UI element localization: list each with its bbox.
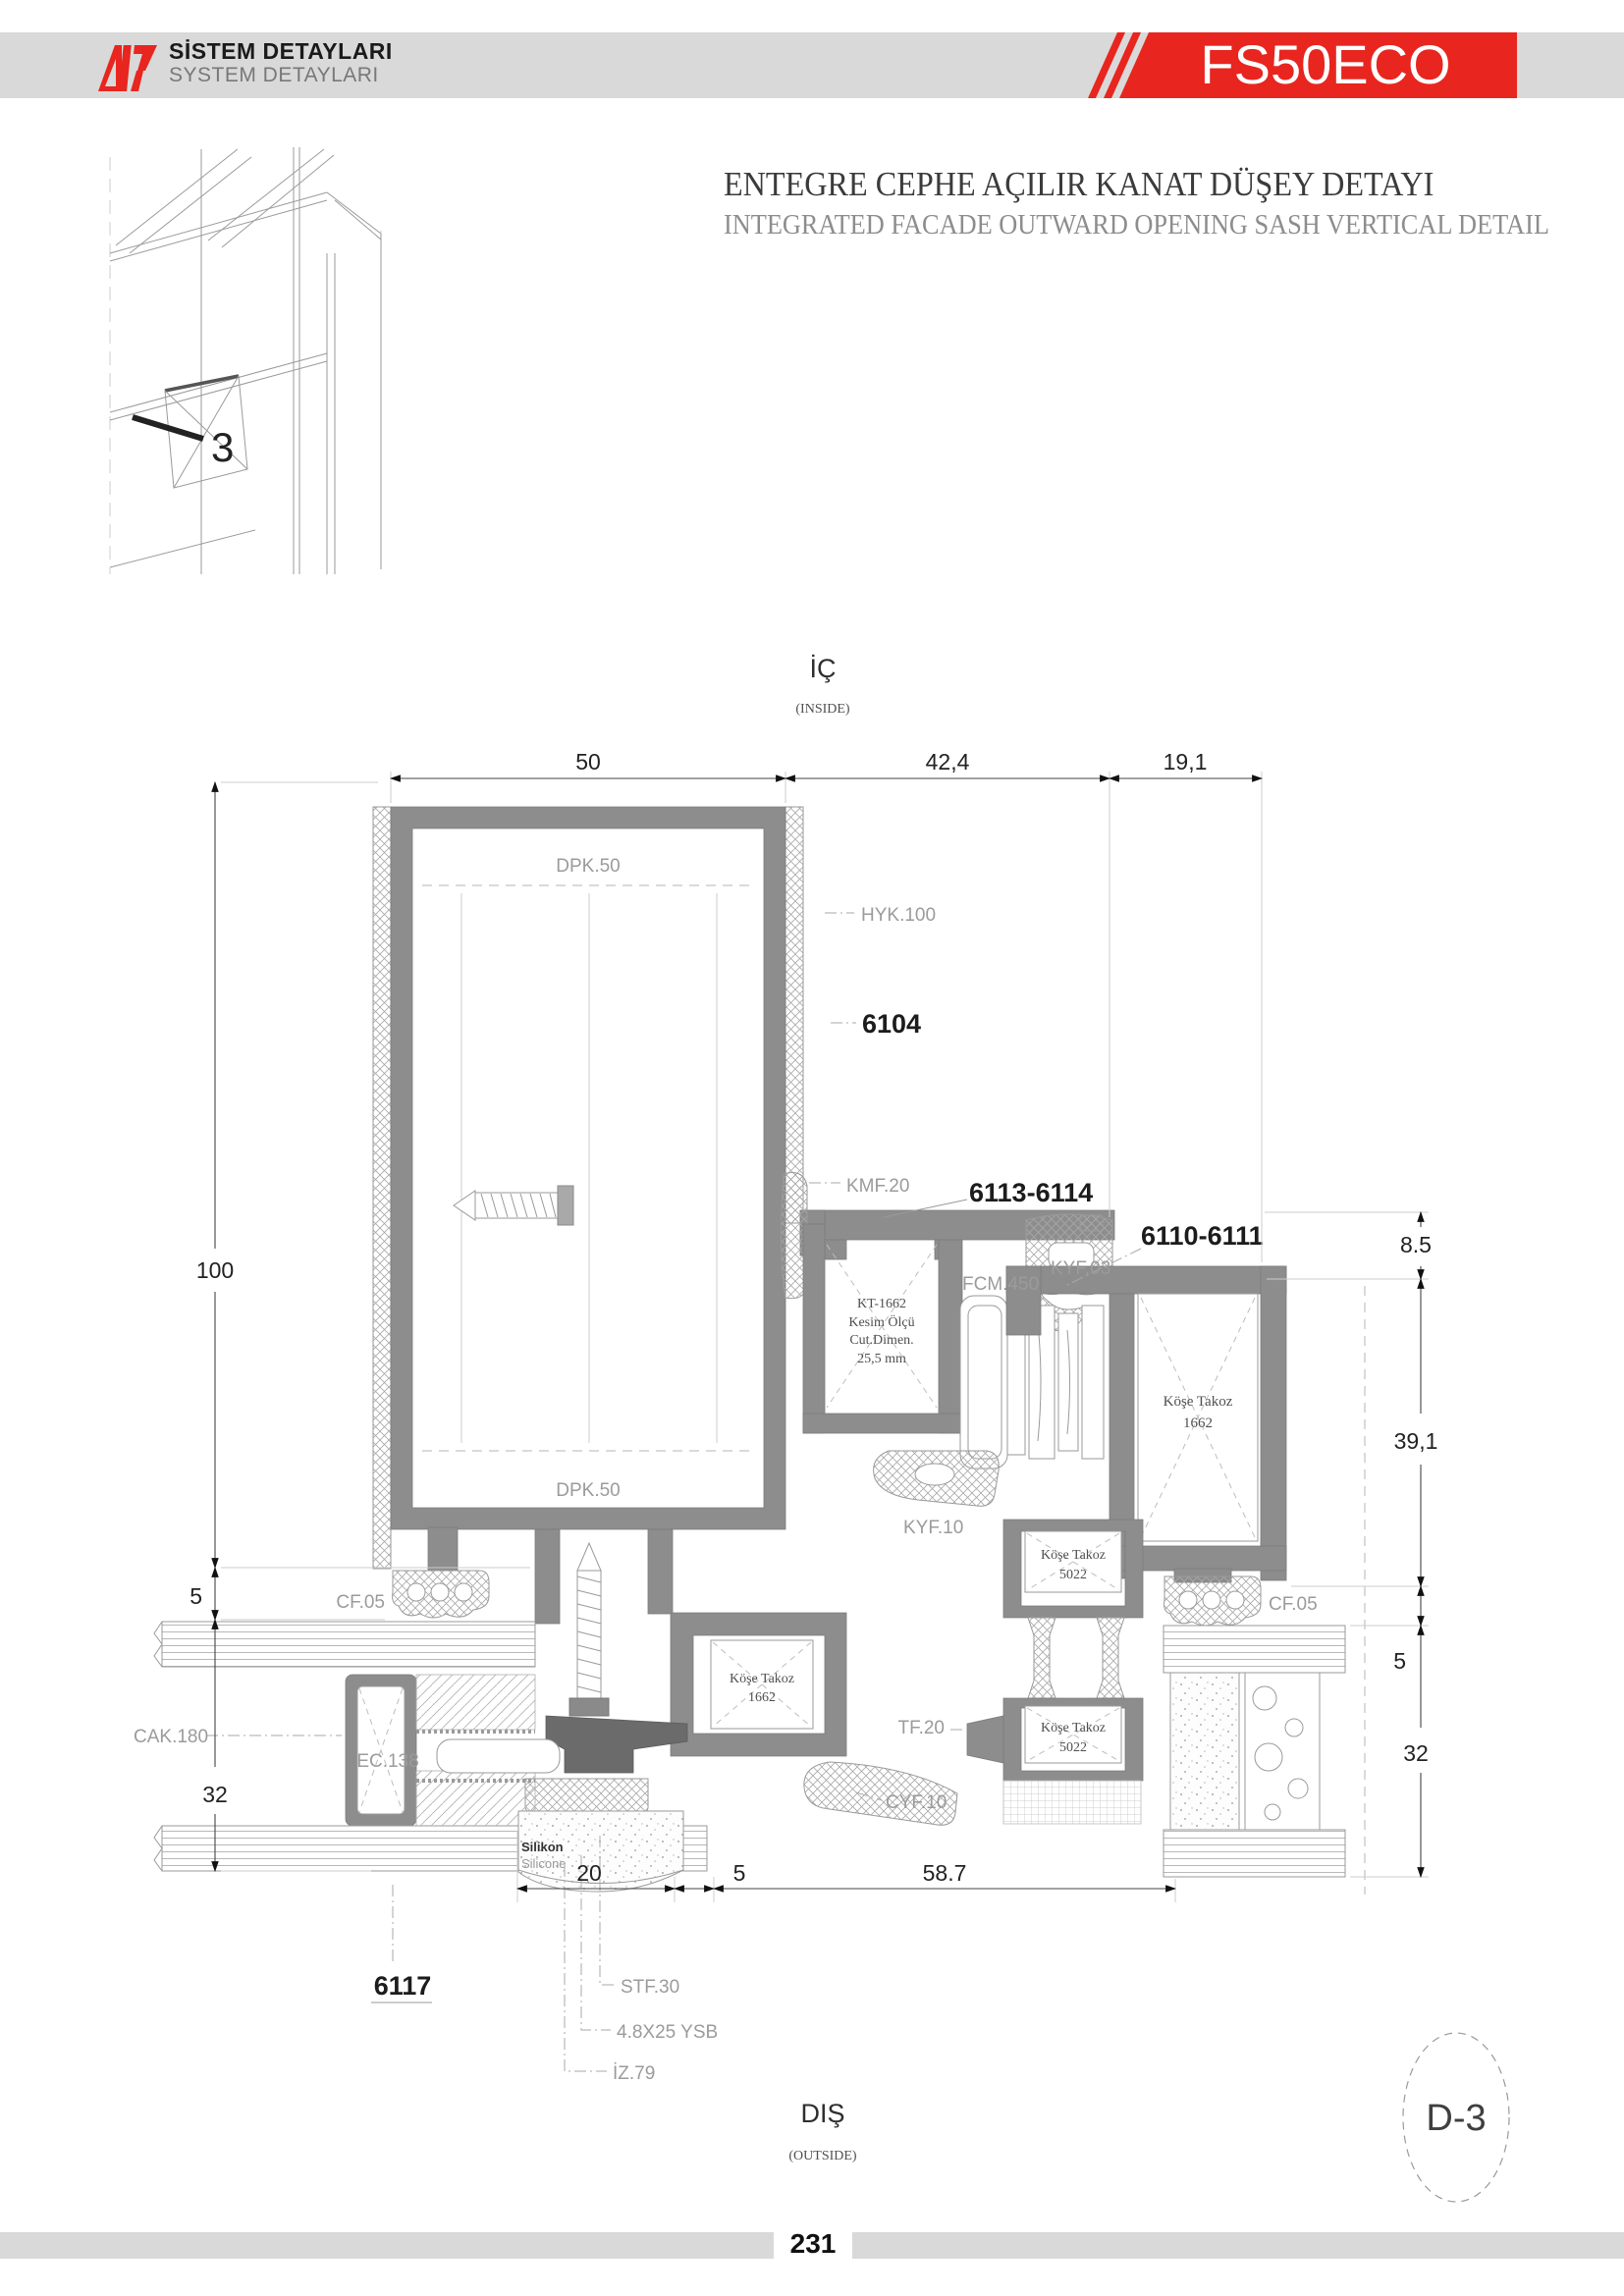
gasket-label: CF.05 [336, 1592, 385, 1613]
glass-label: CAK.180 [134, 1727, 208, 1747]
corner-block-label: Köşe Takoz [1164, 1394, 1233, 1410]
gasket-label: HYK.100 [861, 905, 936, 926]
page-number: 231 [774, 2225, 852, 2263]
corner-block-label: 5022 [1059, 1740, 1087, 1755]
detail-ref-label: D-3 [1426, 2098, 1486, 2139]
gasket-label: KYF.10 [903, 1518, 963, 1538]
dim-value: 100 [196, 1257, 234, 1283]
transom-profile: Köşe Takoz 5022 Köşe Takoz 5022 [967, 1520, 1143, 1824]
silicone-label-en: Silicone [521, 1856, 567, 1871]
inside-label-en: (INSIDE) [795, 702, 850, 717]
isolator-label: İZ.79 [613, 2063, 655, 2084]
facade-isometric-thumbnail: 3 [110, 147, 381, 574]
spacer-label: EC.138 [356, 1751, 418, 1772]
subframe-mesh [1003, 1781, 1141, 1824]
thermal-break [1028, 1618, 1056, 1698]
mullion-profile: DPK.50 DPK.50 [373, 807, 803, 1624]
dim-value: 5 [189, 1583, 202, 1609]
gasket-label: KYF.03 [1051, 1258, 1110, 1279]
dim-value: 42,4 [926, 749, 970, 774]
corner-block-label: 1662 [748, 1690, 776, 1705]
kyf10-gasket [874, 1451, 1000, 1506]
profile-label: DPK.50 [556, 1480, 620, 1501]
gasket-label: KMF.20 [846, 1176, 909, 1197]
dim-value: 50 [575, 749, 601, 774]
corner-block-label: Köşe Takoz [1041, 1721, 1106, 1735]
dim-value: 20 [576, 1860, 602, 1886]
corner-block-label: 5022 [1059, 1568, 1087, 1582]
sash-bottom-profile: Köşe Takoz 1662 [671, 1613, 846, 1756]
silicone-label-tr: Silikon [521, 1840, 564, 1854]
dim-value: 32 [1403, 1740, 1429, 1766]
gasket-label: CF.05 [1269, 1594, 1318, 1615]
cut-dim-note: Kesim Ölçü [848, 1313, 914, 1330]
profile-number: 6110-6111 [1141, 1221, 1264, 1251]
profile-number: 6117 [374, 1971, 432, 2001]
inside-label-tr: İÇ [810, 653, 837, 683]
detail-marker: 3 [211, 424, 234, 470]
profile-label: TF.20 [897, 1718, 945, 1738]
catalog-page: SİSTEM DETAYLARI SYSTEM DETAYLARI FS50EC… [0, 0, 1624, 2296]
glazing-gasket-left [393, 1571, 489, 1618]
profile-number: 6104 [862, 1009, 921, 1039]
cut-dim-note: Cut.Dimen. [849, 1333, 913, 1348]
outside-label-en: (OUTSIDE) [788, 2149, 857, 2163]
outside-label-tr: DIŞ [800, 2099, 844, 2128]
dim-value: 8.5 [1400, 1232, 1432, 1257]
profile-number: 6113-6114 [969, 1178, 1093, 1207]
dim-value: 32 [202, 1782, 228, 1807]
fastener-label: 4.8X25 YSB [617, 2022, 718, 2043]
dim-value: 5 [1393, 1648, 1406, 1674]
corner-block-label: Köşe Takoz [1041, 1548, 1106, 1563]
horizontal-screw [454, 1186, 573, 1225]
gasket-label: CYF.10 [886, 1792, 947, 1813]
dim-value: 19,1 [1164, 749, 1208, 774]
corner-block-label: 1662 [1183, 1415, 1213, 1431]
thermal-break [1097, 1618, 1124, 1698]
dim-value: 5 [733, 1860, 746, 1886]
dim-value: 39,1 [1394, 1428, 1438, 1454]
hinge-label: FCM.450 [962, 1274, 1039, 1295]
tf-wing [967, 1716, 1003, 1763]
detail-reference: D-3 [1403, 2033, 1509, 2202]
cut-dim-note: KT-1662 [857, 1297, 906, 1311]
dim-value: 58.7 [923, 1860, 967, 1886]
cut-dim-note: 25,5 mm [857, 1352, 906, 1366]
profile-label: DPK.50 [556, 856, 620, 877]
fastener-label: STF.30 [621, 1977, 679, 1998]
corner-block-label: Köşe Takoz [730, 1672, 794, 1686]
technical-drawing: 3 İÇ (INSIDE) DIŞ (OUTSIDE) DPK.50 DPK.5… [0, 0, 1624, 2296]
